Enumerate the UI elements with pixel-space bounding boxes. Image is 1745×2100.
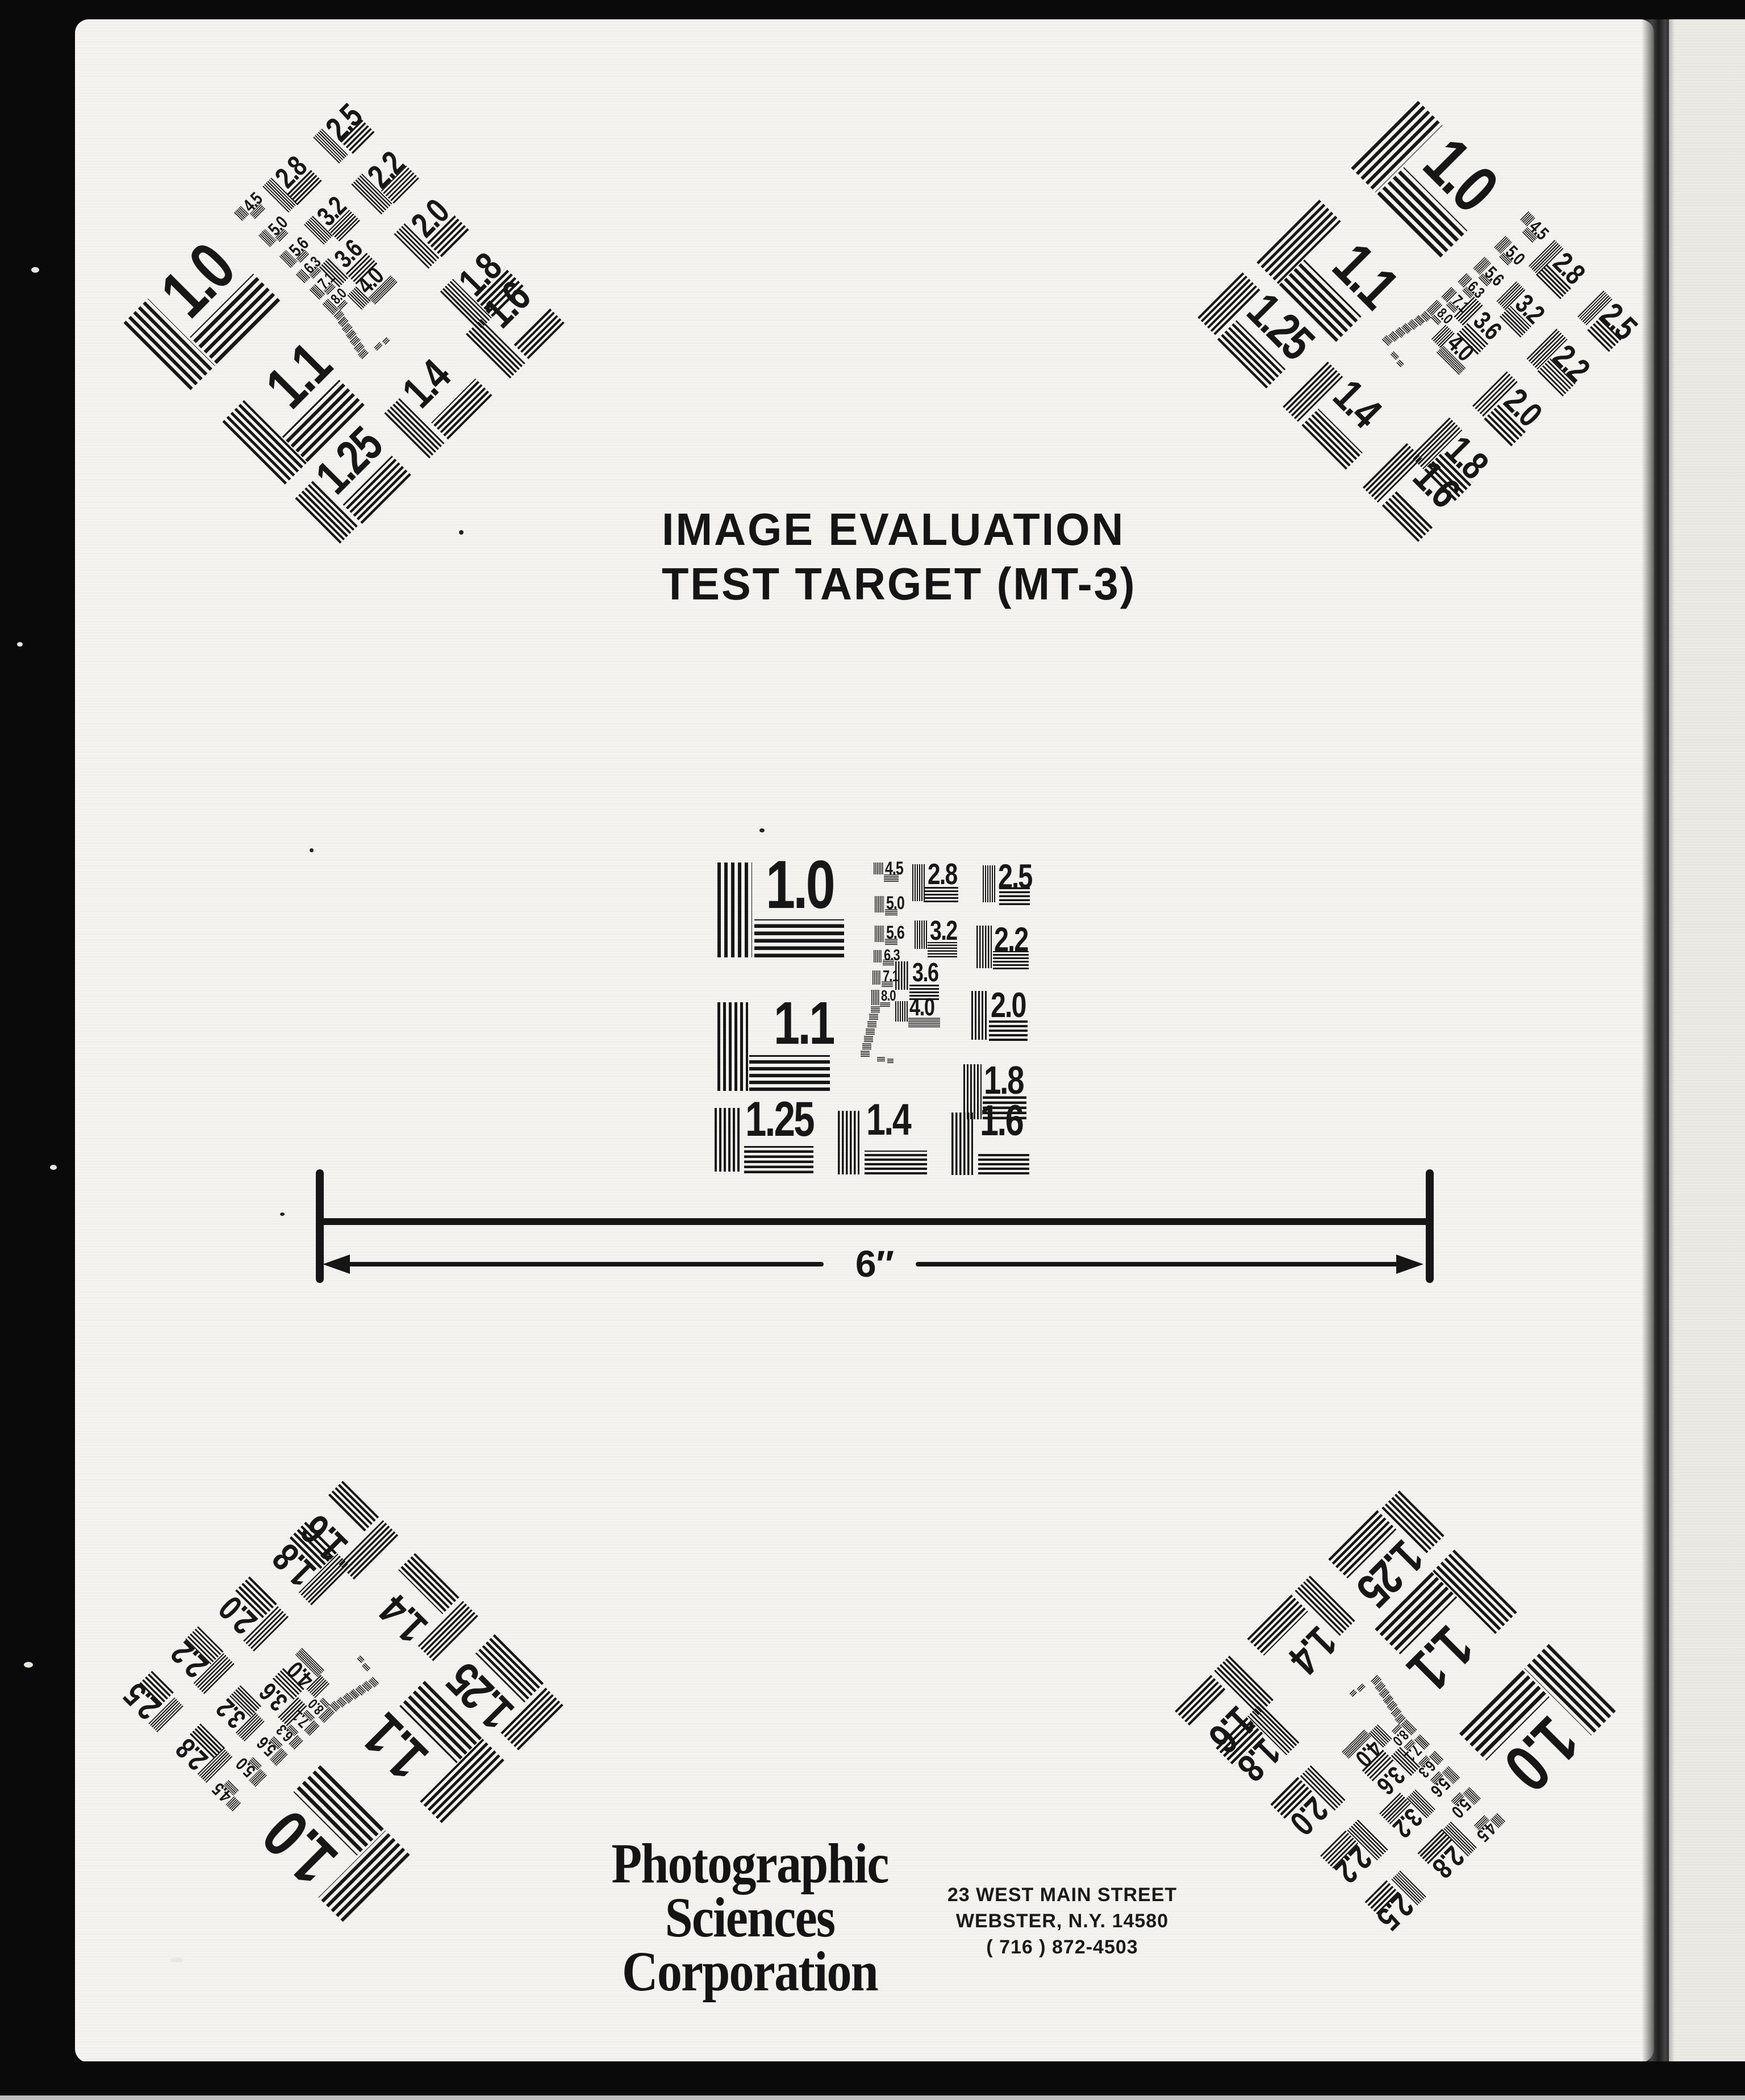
vertical-bars-block	[874, 950, 882, 963]
ruler-left-arrowhead-icon	[323, 1255, 350, 1274]
vertical-bars-block	[963, 1064, 982, 1119]
resolution-label-5: 1.8	[984, 1060, 1023, 1100]
resolution-label-8: 2.5	[998, 860, 1032, 894]
resolution-label-7: 2.2	[994, 923, 1028, 957]
vertical-bars-block	[717, 1002, 748, 1091]
horizontal-bars-block	[1356, 1684, 1366, 1693]
dust-speck	[459, 530, 464, 535]
ruler-right-endbar	[1426, 1169, 1434, 1283]
adjacent-page-edge	[1669, 19, 1745, 2061]
resolution-label-14: 5.0	[886, 894, 904, 912]
dust-speck	[759, 828, 765, 832]
dust-speck	[17, 642, 23, 647]
dust-speck	[170, 1957, 183, 1963]
horizontal-bars-block	[867, 1021, 876, 1027]
horizontal-bars-block	[865, 1151, 927, 1174]
company-address: 23 WEST MAIN STREET WEBSTER, N.Y. 14580 …	[943, 1882, 1182, 1960]
page-title-line1: IMAGE EVALUATION	[662, 502, 1158, 557]
vertical-bars-block	[871, 990, 879, 1005]
vertical-bars-block	[717, 863, 752, 957]
resolution-label-9: 2.8	[928, 860, 957, 889]
resolution-label-11: 3.6	[912, 959, 938, 985]
company-name: Photographic Sciences Corporation	[610, 1836, 890, 1998]
vertical-bars-block	[895, 1001, 908, 1022]
vertical-bars-block	[915, 920, 928, 949]
horizontal-bars-block	[744, 1146, 813, 1173]
test-pattern-center: 1.01.11.251.41.61.82.02.22.52.83.23.64.0…	[713, 855, 1032, 1174]
vertical-bars-block	[874, 863, 884, 874]
page-title-line2: TEST TARGET (MT-3)	[662, 557, 1158, 611]
resolution-label-15: 5.6	[886, 923, 904, 941]
horizontal-bars-block	[361, 1663, 370, 1672]
address-line-1: 23 WEST MAIN STREET	[943, 1882, 1182, 1908]
vertical-bars-block	[912, 864, 925, 901]
horizontal-bars-block	[1396, 360, 1404, 367]
vertical-bars-block	[875, 896, 884, 913]
ruler-arrow-segment-right	[916, 1262, 1398, 1266]
dust-speck	[280, 1212, 285, 1216]
ruler-arrow-segment-left	[348, 1262, 824, 1266]
horizontal-bars-block	[871, 1006, 880, 1013]
dust-speck	[24, 1662, 33, 1668]
vertical-bars-block	[983, 865, 996, 902]
resolution-label-18: 8.0	[881, 988, 896, 1003]
ruler-line	[320, 1218, 1429, 1225]
film-frame-bottom	[0, 2061, 1745, 2100]
resolution-label-12: 4.0	[909, 995, 934, 1020]
horizontal-bars-block	[1350, 1689, 1357, 1697]
vertical-bars-block	[838, 1111, 859, 1174]
resolution-label-3: 1.4	[866, 1097, 910, 1141]
horizontal-bars-block	[866, 1028, 875, 1035]
horizontal-bars-block	[861, 1051, 870, 1057]
resolution-label-10: 3.2	[930, 918, 957, 945]
film-frame-top	[0, 0, 1745, 19]
horizontal-bars-block	[869, 1014, 878, 1020]
vertical-bars-block	[715, 1108, 740, 1172]
company-line-3: Corporation	[610, 1944, 890, 1998]
address-line-2: WEBSTER, N.Y. 14580	[943, 1908, 1182, 1934]
film-frame-bottom-edge	[0, 2095, 1745, 2100]
vertical-bars-block	[872, 970, 881, 985]
resolution-label-16: 6.3	[884, 947, 900, 963]
page-title: IMAGE EVALUATION TEST TARGET (MT-3)	[662, 502, 1158, 611]
page-seam-shadow	[1642, 19, 1675, 2061]
dust-speck	[310, 848, 314, 852]
horizontal-bars-block	[864, 1036, 873, 1042]
resolution-label-0: 1.0	[766, 851, 833, 919]
vertical-bars-block	[875, 926, 884, 942]
company-line-1: Photographic	[610, 1836, 890, 1890]
horizontal-bars-block	[382, 337, 390, 344]
ruler-length-label: 6″	[829, 1242, 920, 1285]
vertical-bars-block	[976, 926, 992, 968]
horizontal-bars-block	[754, 919, 844, 957]
resolution-label-17: 7.1	[883, 968, 899, 984]
resolution-label-1: 1.1	[774, 993, 833, 1053]
vertical-bars-block	[951, 1112, 973, 1175]
scanned-test-target-page: IMAGE EVALUATION TEST TARGET (MT-3) 1.01…	[0, 0, 1745, 2100]
company-line-2: Sciences	[610, 1890, 890, 1944]
horizontal-bars-block	[887, 1059, 894, 1063]
dust-speck	[50, 1165, 57, 1170]
horizontal-bars-block	[862, 1043, 871, 1049]
horizontal-bars-block	[357, 1656, 364, 1663]
horizontal-bars-block	[373, 341, 382, 351]
horizontal-bars-block	[978, 1152, 1029, 1174]
dust-speck	[31, 267, 39, 273]
horizontal-bars-block	[749, 1055, 830, 1091]
resolution-label-2: 1.25	[745, 1095, 813, 1144]
ruler-right-arrowhead-icon	[1396, 1255, 1423, 1274]
horizontal-bars-block	[877, 1056, 885, 1061]
resolution-label-13: 4.5	[885, 859, 903, 877]
address-line-3: ( 716 ) 872-4503	[943, 1934, 1182, 1960]
horizontal-bars-block	[1391, 351, 1400, 360]
resolution-label-6: 2.0	[991, 988, 1025, 1023]
vertical-bars-block	[971, 991, 988, 1040]
